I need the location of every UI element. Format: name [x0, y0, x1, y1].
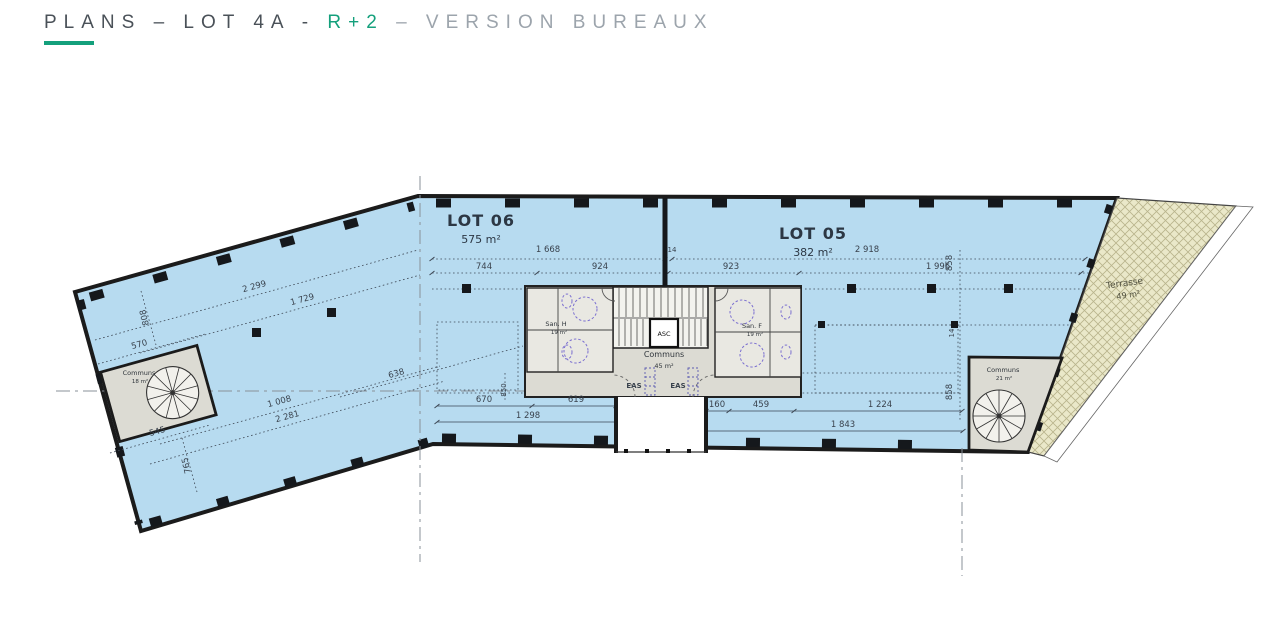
dim-1668: 1 668	[536, 245, 560, 255]
floor-plan: ASC San. H 19 m² San.	[0, 0, 1280, 626]
communs-right-area: 21 m²	[996, 375, 1012, 382]
communs-right-label: Communs	[987, 366, 1020, 374]
lot06-area: 575 m²	[461, 233, 501, 246]
dim-858-lower: 858	[945, 384, 955, 400]
lot05-area: 382 m²	[793, 246, 833, 259]
sanitary-women: San. F 19 m²	[715, 288, 801, 377]
communs-core-area: 45 m²	[654, 362, 674, 370]
title-suffix: – VERSION BUREAUX	[384, 12, 714, 33]
dim-14-mid: 14	[948, 328, 956, 337]
dim-850: 850	[500, 383, 508, 396]
dim-459: 459	[753, 400, 769, 410]
dim-858-upper: 858	[945, 255, 955, 271]
dim-14-top: 14	[668, 246, 677, 254]
dim-923: 923	[723, 262, 739, 272]
communs-core-label: Communs	[644, 350, 684, 359]
communs-left-label: Communs	[123, 369, 156, 377]
san-f-label: San. F	[742, 322, 762, 330]
dim-670: 670	[476, 395, 492, 405]
page-header: PLANS – LOT 4A - R+2 – VERSION BUREAUX	[44, 12, 714, 45]
dim-744: 744	[476, 262, 492, 272]
title-floor-label: R+2	[327, 12, 383, 33]
balcony-void	[616, 396, 706, 454]
san-f-area: 19 m²	[747, 331, 763, 338]
dim-2918: 2 918	[855, 245, 879, 255]
dim-1843: 1 843	[831, 420, 855, 430]
lot06-name: LOT 06	[447, 211, 515, 230]
dim-160: 160	[709, 400, 725, 410]
sanitary-men: San. H 19 m²	[527, 288, 613, 372]
eas-left-label: EAS	[626, 382, 641, 390]
elevator-label: ASC	[657, 330, 671, 338]
san-h-area: 19 m²	[551, 329, 567, 336]
communs-left-area: 18 m²	[132, 378, 148, 385]
title-prefix: PLANS – LOT 4A -	[44, 12, 327, 33]
eas-right-label: EAS	[670, 382, 685, 390]
page-title: PLANS – LOT 4A - R+2 – VERSION BUREAUX	[44, 12, 714, 34]
dim-619: 619	[568, 395, 584, 405]
dim-924: 924	[592, 262, 608, 272]
lot05-name: LOT 05	[779, 224, 847, 243]
stairwell: ASC	[613, 287, 708, 348]
dim-1298: 1 298	[516, 411, 540, 421]
san-h-label: San. H	[545, 320, 566, 328]
title-underline	[44, 41, 94, 45]
dim-1224: 1 224	[868, 400, 892, 410]
